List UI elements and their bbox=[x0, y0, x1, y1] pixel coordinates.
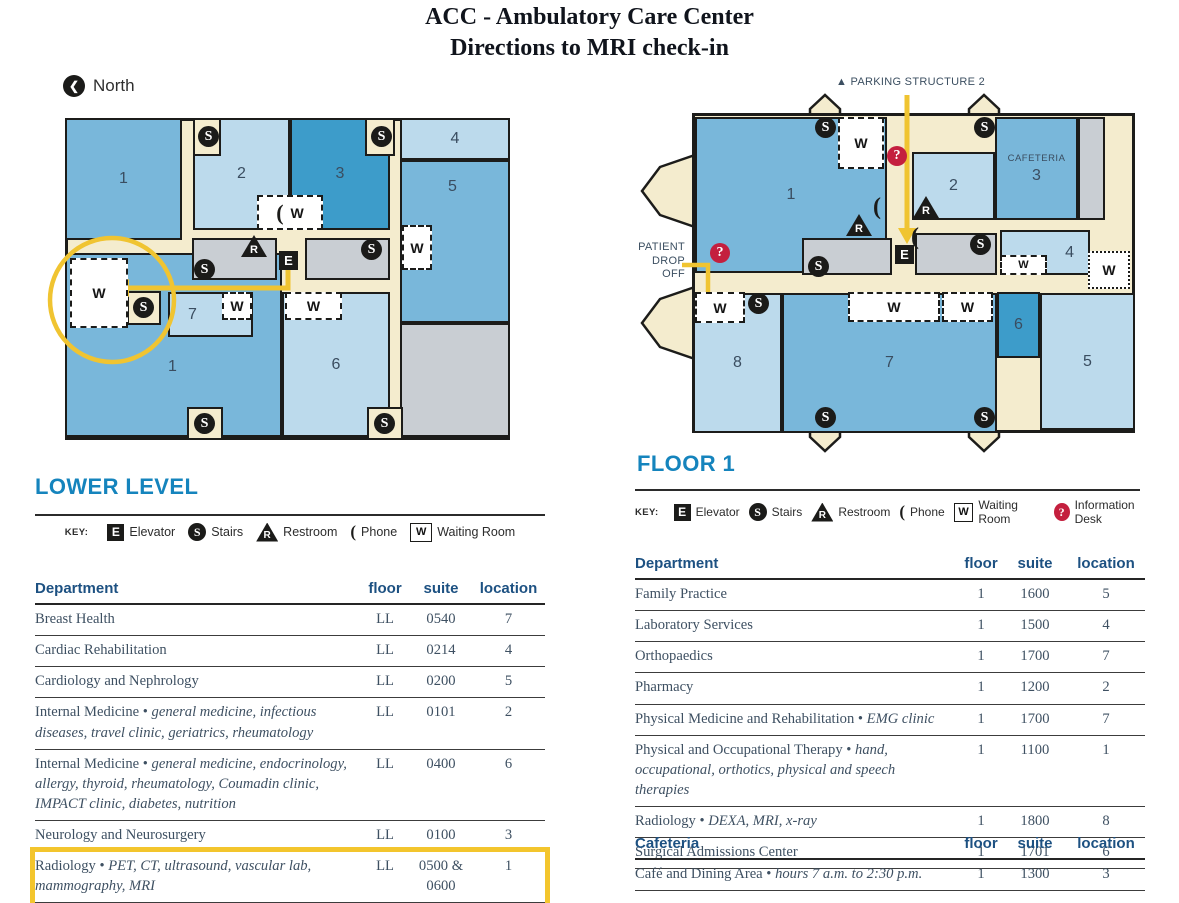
waiting-room-icon: W bbox=[410, 523, 432, 542]
header-suite: suite bbox=[410, 580, 472, 597]
lower-level-key: KEY: EElevator SStairs RRestroom (Phone … bbox=[35, 522, 545, 542]
restroom-icon: R bbox=[811, 503, 833, 522]
elevator-icon: E bbox=[279, 251, 298, 270]
information-desk-icon: ? bbox=[710, 243, 730, 263]
stairs-icon: S bbox=[808, 256, 829, 277]
divider bbox=[35, 514, 545, 516]
table-row: Family Practice 1 1600 5 bbox=[635, 580, 1145, 611]
waiting-room-box: W bbox=[402, 225, 432, 270]
stairs-icon: S bbox=[974, 117, 995, 138]
floor-1-key: KEY: EElevator SStairs RRestroom (Phone … bbox=[635, 498, 1155, 526]
page-title-line2: Directions to MRI check-in bbox=[0, 33, 1179, 64]
stairs-icon: S bbox=[371, 126, 392, 147]
room-4: 4 bbox=[400, 118, 510, 160]
waiting-room-icon: W bbox=[1102, 262, 1115, 278]
table-row: Breast Health LL 0540 7 bbox=[35, 605, 545, 636]
waiting-room-icon: W bbox=[92, 285, 105, 301]
waiting-room-icon: W bbox=[854, 135, 867, 151]
parking-marker-icon: ▲ bbox=[836, 76, 847, 88]
stairs-icon: S bbox=[749, 503, 767, 521]
waiting-room-box: W bbox=[222, 292, 252, 320]
key-item-stairs: SStairs bbox=[749, 503, 803, 521]
waiting-room-icon: W bbox=[954, 503, 974, 522]
table-row: Physical Medicine and RehabilitationEMG … bbox=[635, 705, 1145, 736]
table-row: Neurology and Neurosurgery LL 0100 3 bbox=[35, 821, 545, 852]
key-item-restroom: RRestroom bbox=[811, 503, 890, 522]
table-row: Cardiac Rehabilitation LL 0214 4 bbox=[35, 636, 545, 667]
table-row: Orthopaedics 1 1700 7 bbox=[635, 642, 1145, 673]
header-department: Department bbox=[635, 555, 959, 572]
phone-icon: ( bbox=[899, 502, 905, 522]
lower-level-table: Department floor suite location Breast H… bbox=[35, 578, 545, 903]
stairs-icon: S bbox=[970, 234, 991, 255]
waiting-room-icon: W bbox=[291, 205, 304, 221]
stairs-icon: S bbox=[188, 523, 206, 541]
header-floor: floor bbox=[959, 555, 1003, 572]
key-item-information-desk: ?Information Desk bbox=[1054, 498, 1155, 526]
waiting-room-box: W bbox=[285, 292, 342, 320]
key-item-phone: (Phone bbox=[899, 502, 944, 522]
key-item-waiting-room: WWaiting Room bbox=[410, 523, 515, 542]
room-1-bottom-label: 1 bbox=[168, 358, 177, 376]
entrance-canopy bbox=[642, 155, 695, 227]
page-title: ACC - Ambulatory Care Center Directions … bbox=[0, 2, 1179, 64]
header-floor: floor bbox=[360, 580, 410, 597]
information-desk-icon: ? bbox=[887, 146, 907, 166]
north-label: North bbox=[93, 76, 135, 96]
waiting-room-icon: W bbox=[887, 299, 900, 315]
stairs-icon: S bbox=[974, 407, 995, 428]
waiting-room-box: W bbox=[695, 292, 745, 323]
service-sliver bbox=[1078, 117, 1105, 220]
header-suite: suite bbox=[1003, 555, 1067, 572]
key-item-stairs: SStairs bbox=[188, 523, 243, 541]
stairs-icon: S bbox=[194, 413, 215, 434]
north-arrow-icon: ❮ bbox=[63, 75, 85, 97]
phone-icon: ( bbox=[873, 195, 881, 219]
cafeteria-table: Cafeteria floor suite location Café and … bbox=[635, 833, 1145, 891]
key-item-waiting-room: WWaiting Room bbox=[954, 498, 1045, 526]
service-room-bottom-right bbox=[400, 323, 510, 437]
waiting-room-box-mri-checkin: W bbox=[70, 258, 128, 328]
key-label: KEY: bbox=[635, 507, 659, 518]
table-row: Pharmacy 1 1200 2 bbox=[635, 673, 1145, 704]
stairs-icon: S bbox=[748, 293, 769, 314]
cafeteria-label: CAFETERIA bbox=[1008, 153, 1066, 164]
table-header: Department floor suite location bbox=[35, 578, 545, 605]
table-row: Internal Medicinegeneral medicine, endoc… bbox=[35, 750, 545, 821]
stairs-icon: S bbox=[374, 413, 395, 434]
header-suite: suite bbox=[1003, 835, 1067, 852]
key-item-restroom: RRestroom bbox=[256, 523, 337, 542]
header-location: location bbox=[1067, 835, 1145, 852]
header-department: Department bbox=[35, 580, 360, 597]
key-item-elevator: EElevator bbox=[107, 524, 175, 541]
stairs-icon: S bbox=[133, 297, 154, 318]
waiting-room-box: W bbox=[838, 117, 884, 169]
table-row: Cardiology and Nephrology LL 0200 5 bbox=[35, 667, 545, 698]
stairs-icon: S bbox=[815, 407, 836, 428]
waiting-room-icon: W bbox=[307, 298, 320, 314]
phone-icon: ( bbox=[911, 225, 919, 249]
patient-drop-off-label: PATIENT DROP OFF bbox=[630, 241, 685, 282]
room-1-top: 1 bbox=[65, 118, 182, 240]
floor-1-map: 1 2 CAFETERIA 3 4 8 7 6 5 W W W W W W S … bbox=[630, 75, 1155, 460]
lower-level-heading: LOWER LEVEL bbox=[35, 474, 198, 500]
waiting-room-icon: W bbox=[230, 298, 243, 314]
table-row-radiology-highlighted: RadiologyPET, CT, ultrasound, vascular l… bbox=[35, 852, 545, 903]
waiting-room-icon: W bbox=[410, 240, 423, 256]
room-5-label: 5 bbox=[448, 178, 457, 196]
waiting-room-box: W bbox=[942, 292, 993, 322]
table-header: Department floor suite location bbox=[635, 553, 1145, 580]
stairs-icon: S bbox=[815, 117, 836, 138]
waiting-room-box: W bbox=[1000, 255, 1047, 275]
waiting-room-icon: W bbox=[713, 300, 726, 316]
north-indicator: ❮ North bbox=[63, 75, 135, 97]
waiting-room-box: ( W bbox=[257, 195, 323, 230]
waiting-room-icon: W bbox=[1018, 259, 1028, 271]
floor-1-heading: FLOOR 1 bbox=[637, 451, 735, 477]
table-row: Physical and Occupational Therapyhand, o… bbox=[635, 736, 1145, 807]
page-title-line1: ACC - Ambulatory Care Center bbox=[0, 2, 1179, 33]
phone-icon: ( bbox=[350, 522, 356, 542]
divider bbox=[635, 489, 1140, 491]
lower-level-map: 1 2 3 4 5 1 6 7 ( W W W W W S S S S S S … bbox=[65, 118, 510, 440]
key-item-phone: (Phone bbox=[350, 522, 397, 542]
phone-icon: ( bbox=[276, 202, 283, 224]
header-location: location bbox=[472, 580, 545, 597]
restroom-icon: R bbox=[256, 523, 278, 542]
waiting-room-box: W bbox=[848, 292, 940, 322]
header-location: location bbox=[1067, 555, 1145, 572]
parking-structure-label: ▲ PARKING STRUCTURE 2 bbox=[818, 76, 1003, 88]
table-row: Laboratory Services 1 1500 4 bbox=[635, 611, 1145, 642]
table-header: Cafeteria floor suite location bbox=[635, 833, 1145, 860]
information-desk-icon: ? bbox=[1054, 503, 1070, 521]
table-row: Café and Dining Areahours 7 a.m. to 2:30… bbox=[635, 860, 1145, 891]
elevator-icon: E bbox=[107, 524, 124, 541]
stairs-icon: S bbox=[361, 239, 382, 260]
stairs-icon: S bbox=[194, 259, 215, 280]
room-5: 5 bbox=[1040, 293, 1135, 430]
entrance-canopy bbox=[642, 287, 695, 359]
stairs-icon: S bbox=[198, 126, 219, 147]
table-row: Internal Medicinegeneral medicine, infec… bbox=[35, 698, 545, 749]
key-label: KEY: bbox=[65, 527, 89, 538]
header-cafeteria: Cafeteria bbox=[635, 835, 959, 852]
room-3-cafeteria: CAFETERIA 3 bbox=[995, 117, 1078, 220]
room-6: 6 bbox=[997, 292, 1040, 358]
header-floor: floor bbox=[959, 835, 1003, 852]
floor-1-table: Department floor suite location Family P… bbox=[635, 553, 1145, 869]
elevator-icon: E bbox=[674, 504, 691, 521]
waiting-room-entrance: W bbox=[1088, 251, 1130, 289]
waiting-room-icon: W bbox=[961, 299, 974, 315]
key-item-elevator: EElevator bbox=[674, 504, 740, 521]
